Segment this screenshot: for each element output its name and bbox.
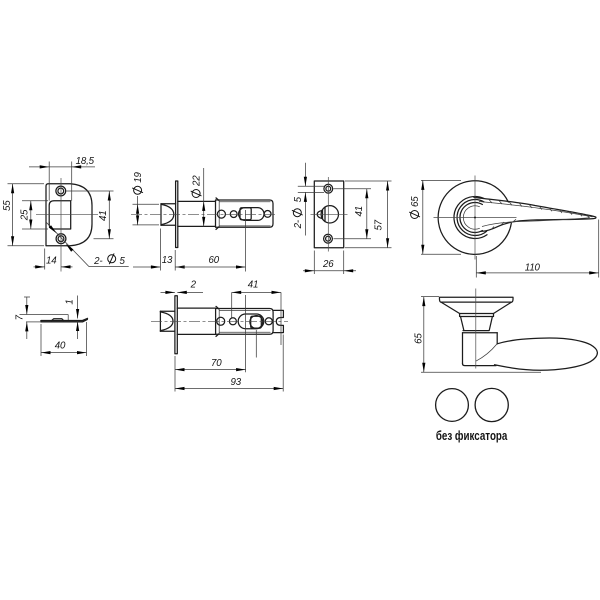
svg-text:93: 93 bbox=[231, 377, 242, 388]
svg-text:110: 110 bbox=[525, 263, 541, 274]
svg-text:7: 7 bbox=[14, 314, 25, 320]
svg-text:65: 65 bbox=[413, 333, 424, 344]
svg-text:2-: 2- bbox=[93, 256, 103, 267]
svg-text:19: 19 bbox=[133, 172, 144, 183]
svg-text:5: 5 bbox=[293, 196, 304, 202]
svg-text:1: 1 bbox=[65, 299, 76, 304]
svg-text:65: 65 bbox=[410, 196, 421, 207]
svg-text:41: 41 bbox=[248, 280, 258, 291]
svg-text:25: 25 bbox=[20, 209, 31, 221]
svg-text:18,5: 18,5 bbox=[76, 156, 95, 167]
svg-text:22: 22 bbox=[191, 175, 202, 187]
svg-text:40: 40 bbox=[55, 341, 66, 352]
svg-text:41: 41 bbox=[354, 206, 365, 216]
svg-text:13: 13 bbox=[162, 255, 173, 266]
svg-text:без фиксатора: без фиксатора bbox=[436, 429, 508, 443]
svg-text:57: 57 bbox=[374, 219, 385, 230]
svg-text:5: 5 bbox=[120, 256, 126, 267]
svg-text:2: 2 bbox=[190, 280, 197, 291]
svg-text:55: 55 bbox=[2, 200, 13, 211]
svg-text:70: 70 bbox=[211, 358, 222, 369]
svg-text:2-: 2- bbox=[293, 219, 304, 229]
svg-text:14: 14 bbox=[46, 256, 57, 267]
svg-text:26: 26 bbox=[322, 259, 334, 270]
svg-text:41: 41 bbox=[98, 211, 109, 221]
svg-text:60: 60 bbox=[209, 255, 220, 266]
